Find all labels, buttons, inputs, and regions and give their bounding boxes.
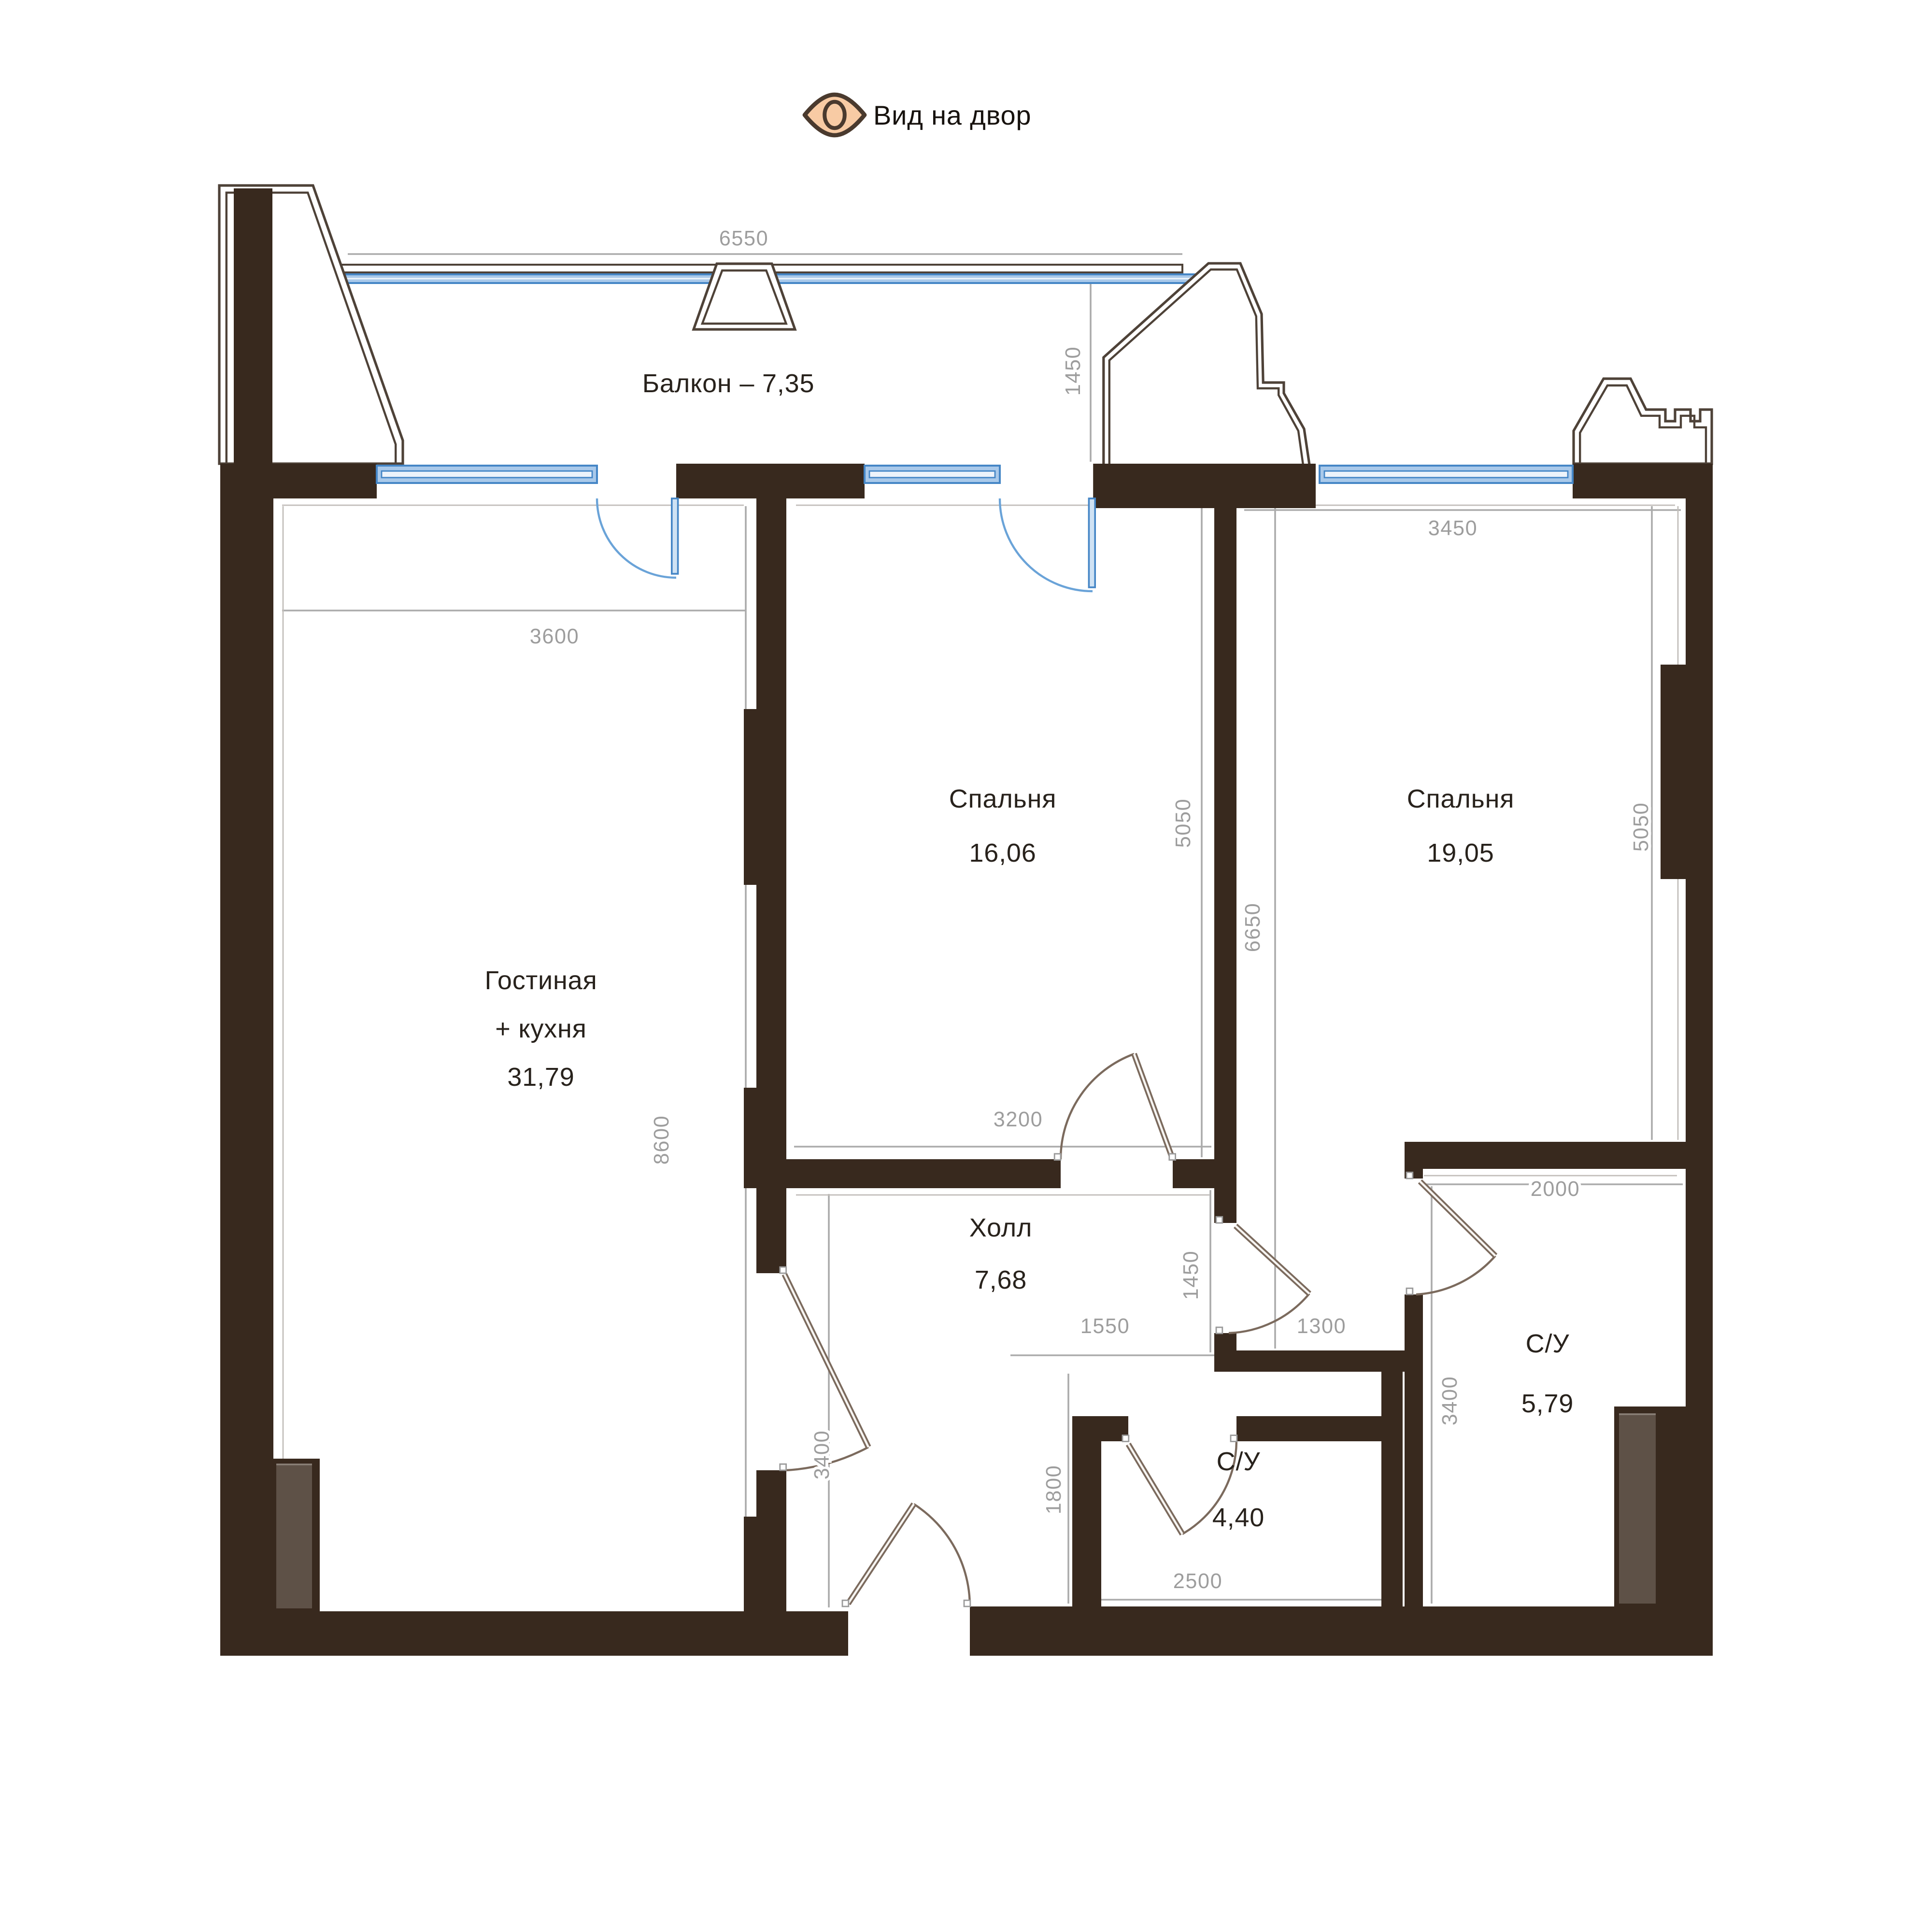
hall-top-wall [786, 1159, 1061, 1188]
dim-bedroom2-depth: 5050 [1630, 802, 1653, 852]
wc-main-area: 5,79 [1521, 1389, 1574, 1418]
right-wall-pilaster [1661, 665, 1713, 879]
bedroom2-bottom-wall [1407, 1142, 1686, 1169]
dim-living-depth: 8600 [650, 1115, 673, 1165]
corridor-bottom-wall [1214, 1350, 1407, 1372]
living-name-line1: Гостиная [484, 966, 597, 995]
divider-pilaster-c [744, 1517, 786, 1611]
hall-area: 7,68 [975, 1265, 1027, 1294]
view-legend: Вид на двор [805, 95, 1031, 135]
dim-wc-main-depth: 3400 [1438, 1376, 1462, 1425]
wc-main-left-wall-lower [1405, 1294, 1423, 1609]
dim-bedroom1-width: 3200 [994, 1108, 1043, 1131]
right-exterior-wall [1686, 464, 1713, 1406]
view-label: Вид на двор [873, 100, 1031, 130]
divider-pilaster-a [744, 709, 786, 885]
top-wall-b [676, 464, 865, 498]
left-exterior-wall [220, 464, 273, 1611]
balcony-side-wall-right [1104, 263, 1310, 470]
living-area: 31,79 [507, 1063, 574, 1092]
floor-plan-page: Вид на двор [0, 0, 1932, 1932]
dim-corridor-width: 1300 [1297, 1315, 1346, 1338]
dim-living-width: 3600 [530, 625, 579, 648]
dim-balcony-width: 6550 [719, 227, 768, 250]
hall-top-wall-block [1173, 1159, 1221, 1188]
neighbor-balcony-outline [1574, 379, 1712, 464]
top-left-wall-bar [234, 188, 272, 464]
dim-wc-guest-depth: 1800 [1042, 1465, 1065, 1514]
balcony-doors [597, 498, 1095, 591]
floor-plan: Вид на двор [0, 0, 1932, 1932]
dim-wc-guest-width: 2500 [1173, 1570, 1222, 1593]
living-window [377, 466, 597, 483]
bottom-wall-right [970, 1606, 1713, 1656]
wc-guest-left-wall [1072, 1441, 1101, 1611]
wc-main-door [1416, 1181, 1495, 1294]
living-shaft [273, 1459, 320, 1611]
bedroom2-name: Спальня [1407, 784, 1515, 813]
wc-guest-top-wall-b [1236, 1416, 1381, 1441]
dim-bedrooms-total-depth: 6650 [1241, 903, 1264, 952]
dim-bedroom1-depth: 5050 [1172, 798, 1195, 848]
eye-icon [805, 95, 865, 135]
bedroom1-balcony-door [1000, 498, 1095, 591]
hall-name: Холл [969, 1213, 1032, 1242]
wc-main-shaft [1614, 1406, 1661, 1606]
dim-wc-main-width: 2000 [1531, 1178, 1580, 1201]
bedroom2-area: 19,05 [1427, 838, 1494, 867]
top-wall-a [220, 464, 377, 498]
divider-pilaster-b [744, 1088, 786, 1188]
balcony-label: Балкон – 7,35 [642, 369, 815, 398]
dim-hall-left-depth: 3400 [810, 1430, 834, 1479]
bedrooms-divider-wall [1214, 508, 1236, 1223]
dim-balcony-depth: 1450 [1062, 346, 1085, 396]
wc-guest-top-wall-a [1072, 1416, 1128, 1441]
dimension-lines [282, 254, 1683, 1609]
wc-main-name: С/У [1526, 1329, 1570, 1358]
bedroom1-area: 16,06 [969, 838, 1036, 867]
dim-hall-passage: 1450 [1179, 1250, 1203, 1300]
living-name-line2: + кухня [495, 1014, 586, 1043]
top-wall-c [1093, 464, 1316, 508]
walls [220, 188, 1713, 1656]
living-balcony-door [597, 498, 678, 578]
bedroom1-window [865, 466, 1000, 483]
wc-guest-name: С/У [1217, 1447, 1261, 1476]
wc-guest-right-wall [1381, 1372, 1403, 1609]
bedroom2-window [1320, 466, 1573, 483]
dim-hall-opening: 1550 [1080, 1315, 1130, 1338]
windows [377, 466, 1573, 483]
dim-bedroom2-width: 3450 [1428, 517, 1477, 540]
entrance-door [848, 1504, 970, 1606]
bottom-wall-left [220, 1611, 848, 1656]
bedroom1-door [1061, 1054, 1173, 1159]
wc-guest-area: 4,40 [1212, 1503, 1264, 1532]
bedroom1-name: Спальня [949, 784, 1057, 813]
